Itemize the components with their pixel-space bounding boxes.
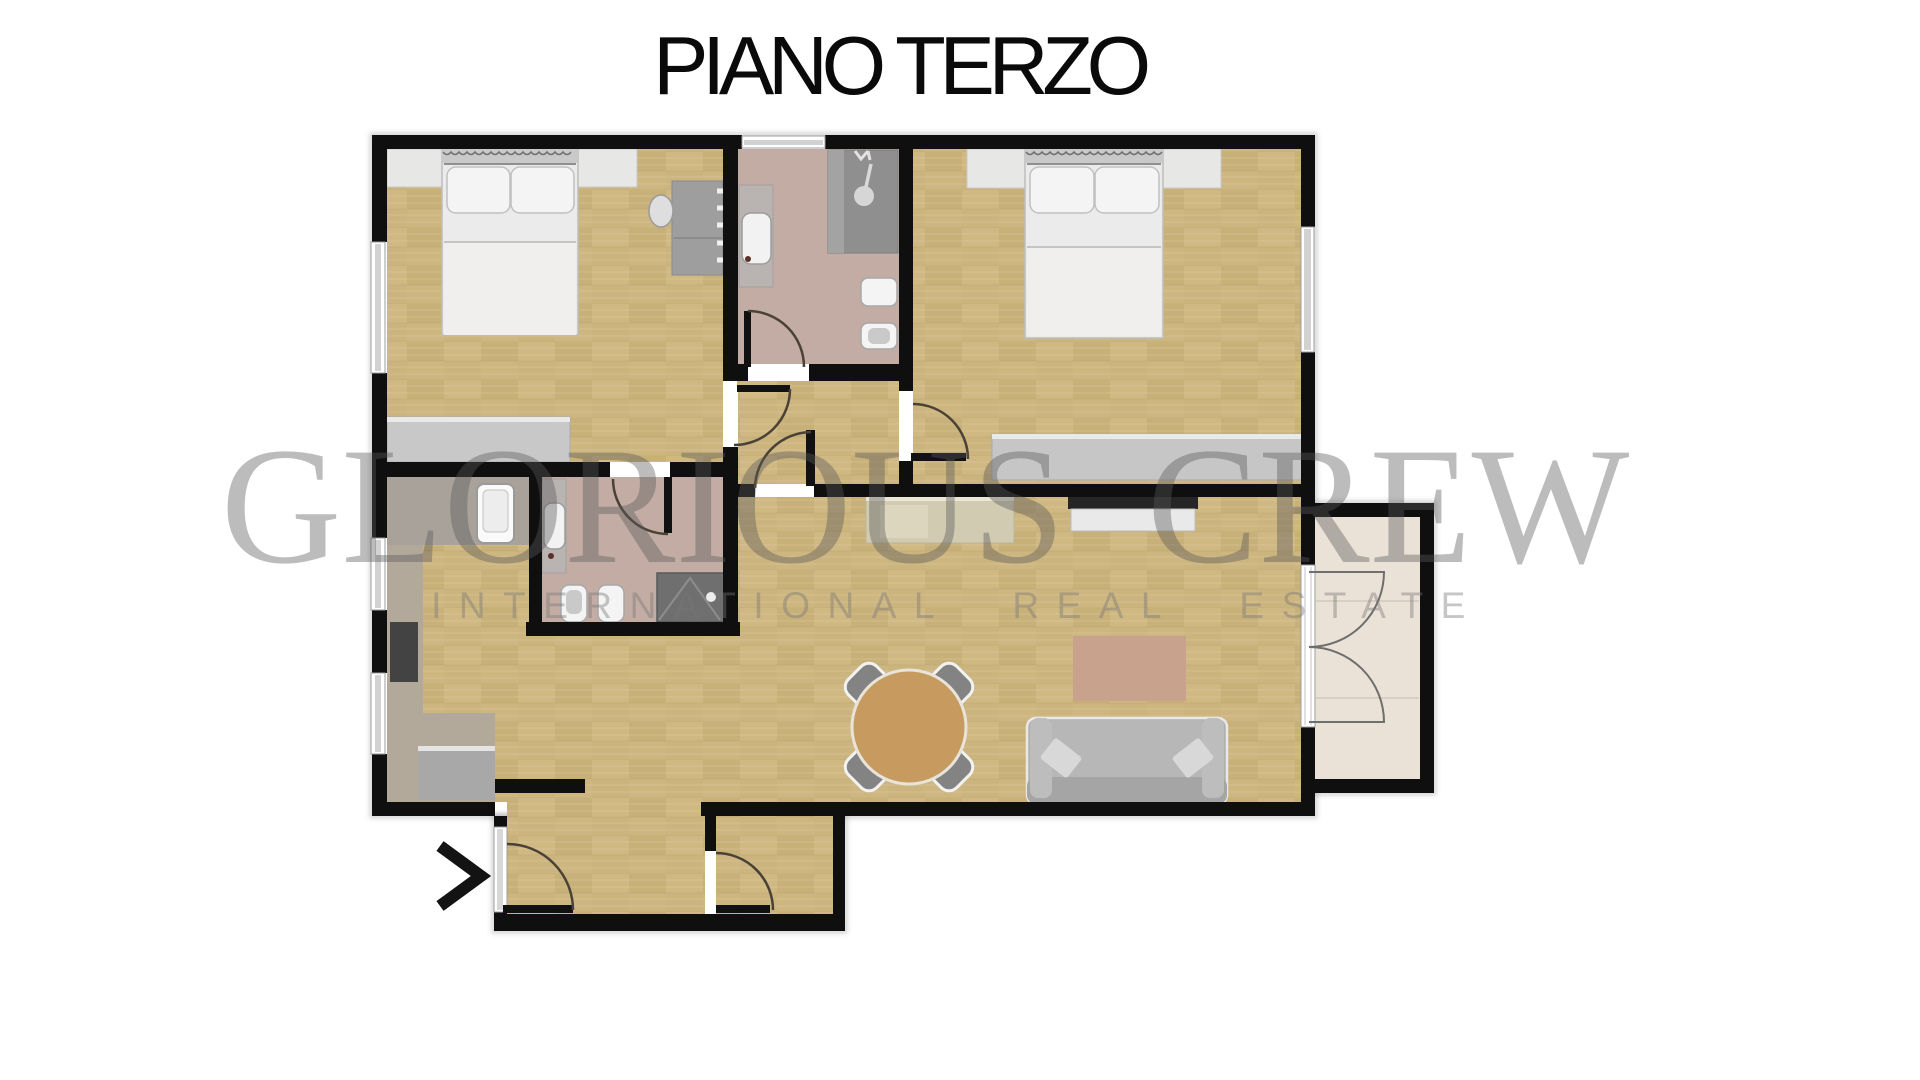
svg-text:INTERNATIONAL REAL ESTATE: INTERNATIONAL REAL ESTATE (431, 585, 1483, 626)
svg-text:GLORIOUS CREW: GLORIOUS CREW (221, 414, 1630, 599)
svg-text:PIANO TERZO: PIANO TERZO (653, 19, 1148, 112)
